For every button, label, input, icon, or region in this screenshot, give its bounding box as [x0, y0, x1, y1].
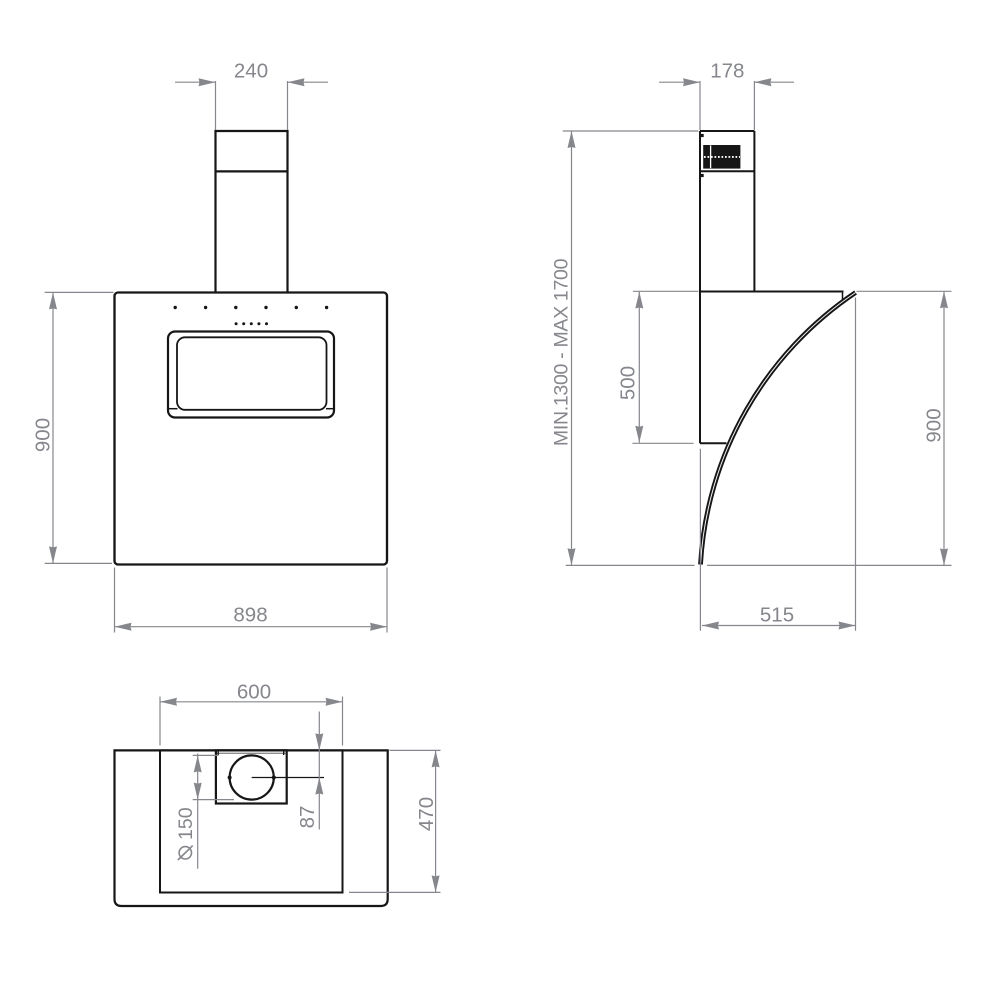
svg-text:600: 600 [237, 681, 271, 704]
svg-text:150: 150 [175, 807, 197, 840]
svg-text:MIN.1300 - MAX 1700: MIN.1300 - MAX 1700 [551, 258, 573, 446]
svg-text:900: 900 [923, 408, 946, 442]
svg-text:178: 178 [710, 60, 744, 83]
svg-text:900: 900 [32, 418, 55, 452]
svg-text:87: 87 [296, 806, 319, 829]
svg-text:500: 500 [617, 366, 640, 400]
svg-text:470: 470 [415, 797, 438, 831]
svg-text:898: 898 [233, 604, 267, 627]
svg-text:515: 515 [760, 603, 794, 626]
svg-text:240: 240 [234, 60, 268, 83]
